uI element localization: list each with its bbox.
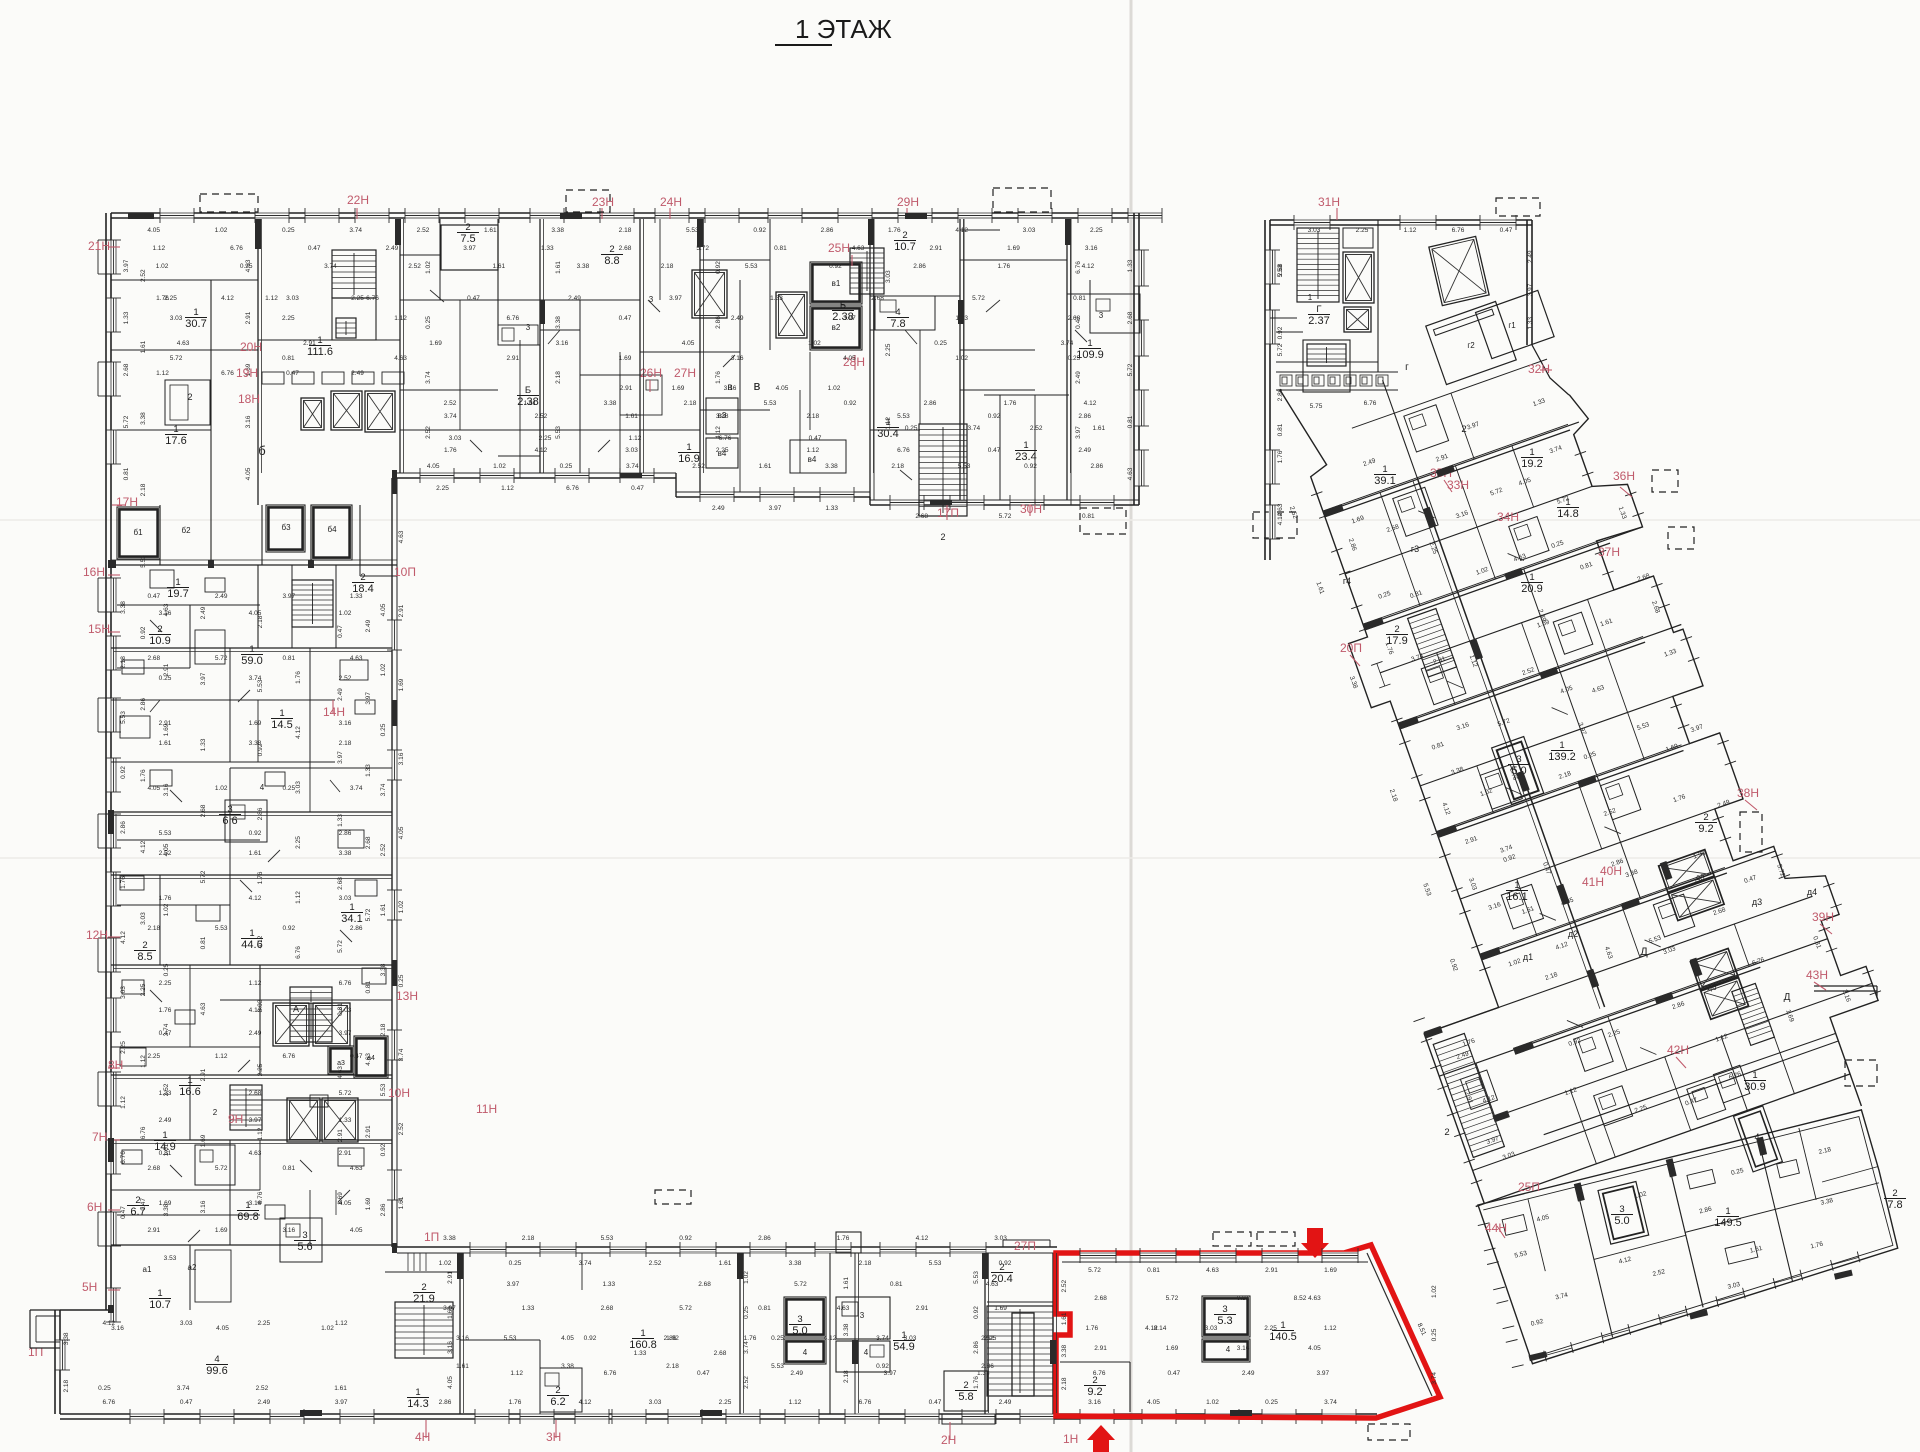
- svg-text:2.86: 2.86: [120, 821, 127, 834]
- svg-text:2.86: 2.86: [339, 830, 352, 837]
- svg-text:3.97: 3.97: [365, 692, 372, 705]
- svg-text:2: 2: [1703, 812, 1708, 823]
- svg-text:3.03: 3.03: [649, 1399, 662, 1406]
- svg-text:2.86: 2.86: [1078, 413, 1091, 420]
- svg-text:2.91: 2.91: [929, 245, 942, 252]
- svg-text:4.05: 4.05: [1308, 1345, 1321, 1352]
- svg-text:0.25: 0.25: [1068, 355, 1081, 362]
- svg-text:0.92: 0.92: [1277, 326, 1284, 339]
- svg-text:5.53: 5.53: [159, 830, 172, 837]
- svg-text:6.76: 6.76: [859, 1399, 872, 1406]
- svg-text:25П: 25П: [1518, 1180, 1540, 1194]
- svg-text:19.7: 19.7: [167, 588, 188, 600]
- svg-text:139.2: 139.2: [1548, 751, 1576, 763]
- svg-text:1.69: 1.69: [429, 340, 442, 347]
- svg-text:2: 2: [142, 940, 147, 951]
- svg-text:3: 3: [1099, 311, 1104, 320]
- svg-text:6.6: 6.6: [222, 815, 237, 827]
- svg-text:0.25: 0.25: [509, 1260, 522, 1267]
- svg-text:Д: Д: [1784, 992, 1791, 1003]
- svg-text:3.74: 3.74: [967, 425, 980, 432]
- svg-text:0.25: 0.25: [98, 1385, 111, 1392]
- svg-text:1.61: 1.61: [159, 740, 172, 747]
- svg-text:109.9: 109.9: [1076, 349, 1104, 361]
- svg-text:5.72: 5.72: [972, 295, 985, 302]
- svg-text:19Н: 19Н: [236, 366, 258, 380]
- svg-text:2.49: 2.49: [215, 593, 228, 600]
- svg-text:3.38: 3.38: [249, 740, 262, 747]
- svg-text:0.25: 0.25: [934, 340, 947, 347]
- svg-text:2.25: 2.25: [716, 447, 729, 454]
- svg-text:4.63: 4.63: [365, 1053, 372, 1066]
- svg-text:29Н: 29Н: [897, 195, 919, 209]
- svg-text:3.38: 3.38: [63, 1332, 70, 1345]
- svg-text:2.18: 2.18: [619, 227, 632, 234]
- svg-text:3.74: 3.74: [444, 413, 457, 420]
- svg-text:5.72: 5.72: [999, 513, 1012, 520]
- svg-text:0.47: 0.47: [180, 1399, 193, 1406]
- svg-text:0.47: 0.47: [147, 593, 160, 600]
- svg-text:39Н: 39Н: [1812, 910, 1834, 924]
- svg-text:2.86: 2.86: [981, 1363, 994, 1370]
- svg-text:г1: г1: [1508, 321, 1516, 330]
- svg-text:2.68: 2.68: [249, 1090, 262, 1097]
- svg-text:2.49: 2.49: [159, 1117, 172, 1124]
- svg-text:1.12: 1.12: [501, 485, 514, 492]
- svg-text:5.72: 5.72: [365, 908, 372, 921]
- svg-text:20Н: 20Н: [240, 340, 262, 354]
- svg-text:2.68: 2.68: [147, 655, 160, 662]
- svg-text:3.97: 3.97: [123, 259, 130, 272]
- svg-text:4.12: 4.12: [535, 447, 548, 454]
- svg-text:5.72: 5.72: [200, 870, 207, 883]
- svg-text:0.81: 0.81: [282, 1165, 295, 1172]
- svg-text:6.76: 6.76: [604, 1370, 617, 1377]
- svg-text:2.52: 2.52: [1061, 1279, 1068, 1292]
- svg-text:2.49: 2.49: [568, 295, 581, 302]
- svg-text:1.76: 1.76: [1277, 450, 1284, 463]
- svg-text:0.47: 0.47: [988, 447, 1001, 454]
- svg-text:0.81: 0.81: [200, 936, 207, 949]
- svg-text:4.63: 4.63: [837, 1305, 850, 1312]
- svg-text:1: 1: [349, 902, 354, 913]
- svg-text:14.5: 14.5: [271, 719, 292, 731]
- svg-text:38Н: 38Н: [1737, 786, 1759, 800]
- svg-text:4.63: 4.63: [249, 1150, 262, 1157]
- svg-text:1.76: 1.76: [1004, 400, 1017, 407]
- svg-text:10П: 10П: [394, 565, 416, 579]
- svg-text:2.49: 2.49: [712, 505, 725, 512]
- svg-text:1: 1: [173, 424, 178, 435]
- svg-text:1.69: 1.69: [163, 723, 170, 736]
- svg-text:д2: д2: [1568, 929, 1578, 939]
- svg-text:6.76: 6.76: [1364, 400, 1377, 407]
- svg-text:22Н: 22Н: [347, 193, 369, 207]
- svg-text:1: 1: [317, 335, 322, 346]
- svg-text:1.69: 1.69: [200, 1134, 207, 1147]
- svg-text:4.12: 4.12: [257, 935, 264, 948]
- svg-text:2.25: 2.25: [1356, 227, 1369, 234]
- svg-text:2.18: 2.18: [147, 925, 160, 932]
- svg-text:3: 3: [526, 323, 531, 332]
- svg-text:44Н: 44Н: [1485, 1221, 1507, 1235]
- svg-text:3.38: 3.38: [120, 601, 127, 614]
- svg-text:3.16: 3.16: [163, 783, 170, 796]
- svg-text:2.49: 2.49: [257, 1399, 270, 1406]
- svg-text:3.97: 3.97: [1075, 426, 1082, 439]
- svg-text:0.92: 0.92: [829, 263, 842, 270]
- svg-text:2.49: 2.49: [999, 1399, 1012, 1406]
- svg-text:1.02: 1.02: [743, 1271, 750, 1284]
- svg-text:1.12: 1.12: [152, 245, 165, 252]
- svg-text:0.92: 0.92: [249, 830, 262, 837]
- svg-text:4: 4: [1226, 1345, 1231, 1354]
- svg-text:2.52: 2.52: [425, 426, 432, 439]
- svg-text:2: 2: [1394, 624, 1399, 635]
- svg-text:1: 1: [1023, 440, 1028, 451]
- svg-text:1.69: 1.69: [159, 1200, 172, 1207]
- svg-text:г3: г3: [1411, 544, 1419, 554]
- svg-text:г4: г4: [1343, 576, 1351, 586]
- svg-text:3.74: 3.74: [398, 1048, 405, 1061]
- svg-text:4.05: 4.05: [163, 843, 170, 856]
- svg-text:0.81: 0.81: [282, 355, 295, 362]
- svg-text:3.03: 3.03: [120, 986, 127, 999]
- svg-text:1: 1: [1308, 293, 1313, 302]
- svg-text:2: 2: [421, 1282, 426, 1293]
- svg-text:10.9: 10.9: [149, 635, 170, 647]
- svg-text:2.25: 2.25: [719, 1399, 732, 1406]
- svg-text:0.25: 0.25: [159, 675, 172, 682]
- svg-text:3.53: 3.53: [164, 1255, 177, 1262]
- svg-text:2.49: 2.49: [386, 245, 399, 252]
- svg-text:2: 2: [360, 572, 365, 583]
- svg-text:43Н: 43Н: [1806, 968, 1828, 982]
- svg-text:1.76: 1.76: [295, 671, 302, 684]
- svg-text:3.97: 3.97: [769, 505, 782, 512]
- svg-text:1.02: 1.02: [215, 227, 228, 234]
- svg-text:3.03: 3.03: [625, 447, 638, 454]
- svg-text:3.74: 3.74: [249, 675, 262, 682]
- svg-text:0.25: 0.25: [560, 463, 573, 470]
- svg-text:2.18: 2.18: [380, 1023, 387, 1036]
- svg-text:2.52: 2.52: [256, 1385, 269, 1392]
- svg-text:20П: 20П: [1340, 641, 1362, 655]
- svg-text:1.33: 1.33: [123, 311, 130, 324]
- svg-text:0.81: 0.81: [758, 1305, 771, 1312]
- svg-text:0.47: 0.47: [697, 1370, 710, 1377]
- svg-text:1: 1: [249, 928, 254, 939]
- svg-text:5.72: 5.72: [170, 355, 183, 362]
- svg-text:1.33: 1.33: [977, 1370, 990, 1377]
- svg-text:1.61: 1.61: [1092, 425, 1105, 432]
- svg-text:2.68: 2.68: [337, 877, 344, 890]
- svg-text:17.6: 17.6: [165, 435, 186, 447]
- svg-text:4.05: 4.05: [682, 340, 695, 347]
- svg-text:5Н: 5Н: [82, 1280, 97, 1294]
- svg-text:2.91: 2.91: [1094, 1345, 1107, 1352]
- svg-text:1: 1: [1280, 1320, 1285, 1331]
- svg-text:3.03: 3.03: [1205, 1325, 1218, 1332]
- svg-text:1.61: 1.61: [524, 400, 537, 407]
- svg-text:21Н: 21Н: [88, 239, 110, 253]
- svg-text:149.5: 149.5: [1714, 1217, 1742, 1229]
- svg-text:2.86: 2.86: [140, 698, 147, 711]
- svg-text:140.5: 140.5: [1269, 1331, 1297, 1343]
- svg-text:4.63: 4.63: [1308, 1295, 1321, 1302]
- svg-text:1.76: 1.76: [509, 1399, 522, 1406]
- svg-text:4.63: 4.63: [852, 245, 865, 252]
- svg-text:39.1: 39.1: [1374, 475, 1395, 487]
- svg-text:1.02: 1.02: [1206, 1399, 1219, 1406]
- svg-text:1.02: 1.02: [666, 1335, 679, 1342]
- svg-text:0.92: 0.92: [973, 1306, 980, 1319]
- svg-text:3: 3: [302, 1230, 307, 1241]
- svg-text:2.86: 2.86: [439, 1399, 452, 1406]
- svg-text:3.38: 3.38: [555, 316, 562, 329]
- svg-text:1.33: 1.33: [634, 1350, 647, 1357]
- svg-text:1: 1: [686, 442, 691, 453]
- svg-text:1.61: 1.61: [719, 1260, 732, 1267]
- svg-text:3.03: 3.03: [1308, 227, 1321, 234]
- svg-text:1.12: 1.12: [629, 435, 642, 442]
- svg-text:4.05: 4.05: [147, 227, 160, 234]
- svg-text:2.91: 2.91: [447, 1271, 454, 1284]
- svg-text:30.9: 30.9: [1744, 1081, 1765, 1093]
- svg-text:14Н: 14Н: [323, 705, 345, 719]
- svg-text:2.91: 2.91: [147, 1227, 160, 1234]
- svg-text:0.25: 0.25: [905, 425, 918, 432]
- svg-text:3.16: 3.16: [282, 1227, 295, 1234]
- svg-text:1.12: 1.12: [257, 1127, 264, 1140]
- svg-text:5.0: 5.0: [792, 1325, 807, 1337]
- svg-text:1.02: 1.02: [955, 355, 968, 362]
- svg-text:1.69: 1.69: [619, 355, 632, 362]
- svg-text:3.74: 3.74: [876, 1335, 889, 1342]
- svg-text:2.52: 2.52: [380, 843, 387, 856]
- svg-text:1.69: 1.69: [1166, 1345, 1179, 1352]
- svg-text:1.76: 1.76: [159, 1007, 172, 1014]
- svg-text:9.2: 9.2: [1698, 823, 1713, 835]
- svg-text:4.05: 4.05: [339, 1200, 352, 1207]
- svg-text:4.63: 4.63: [337, 1066, 344, 1079]
- svg-text:6.76: 6.76: [366, 295, 379, 302]
- svg-text:1: 1: [1087, 338, 1092, 349]
- svg-text:1.12: 1.12: [249, 980, 262, 987]
- svg-text:2.18: 2.18: [843, 1370, 850, 1383]
- svg-text:1: 1: [1514, 880, 1519, 891]
- svg-text:4.12: 4.12: [221, 295, 234, 302]
- svg-text:5.72: 5.72: [794, 1281, 807, 1288]
- svg-text:0.81: 0.81: [365, 980, 372, 993]
- svg-text:3.16: 3.16: [731, 355, 744, 362]
- svg-text:5.72: 5.72: [679, 1305, 692, 1312]
- svg-text:1.69: 1.69: [1007, 245, 1020, 252]
- svg-text:4.05: 4.05: [249, 610, 262, 617]
- svg-text:1.76: 1.76: [1085, 1325, 1098, 1332]
- svg-text:4.63: 4.63: [177, 340, 190, 347]
- svg-text:2.86: 2.86: [758, 1235, 771, 1242]
- svg-text:3.16: 3.16: [556, 340, 569, 347]
- svg-text:2.91: 2.91: [506, 355, 519, 362]
- svg-text:2.91: 2.91: [916, 1305, 929, 1312]
- svg-text:4.05: 4.05: [380, 603, 387, 616]
- svg-text:0.47: 0.47: [929, 1399, 942, 1406]
- svg-text:3.97: 3.97: [669, 295, 682, 302]
- svg-text:2.68: 2.68: [698, 1281, 711, 1288]
- svg-text:3: 3: [1619, 1204, 1624, 1215]
- svg-text:8.52: 8.52: [1294, 1295, 1307, 1302]
- svg-text:20.9: 20.9: [1521, 583, 1542, 595]
- svg-text:4.63: 4.63: [1277, 503, 1284, 516]
- svg-text:0.47: 0.47: [350, 1053, 363, 1060]
- svg-text:1.02: 1.02: [156, 263, 169, 270]
- svg-text:0.92: 0.92: [988, 413, 1001, 420]
- svg-text:2.25: 2.25: [295, 836, 302, 849]
- svg-text:3: 3: [797, 1314, 802, 1325]
- svg-text:1.76: 1.76: [257, 871, 264, 884]
- svg-text:1.69: 1.69: [398, 678, 405, 691]
- svg-text:0.81: 0.81: [1082, 513, 1095, 520]
- svg-text:0.47: 0.47: [1500, 227, 1513, 234]
- svg-text:14.3: 14.3: [407, 1398, 428, 1410]
- svg-text:1.02: 1.02: [215, 785, 228, 792]
- svg-text:2.25: 2.25: [1090, 227, 1103, 234]
- svg-text:2.68: 2.68: [619, 245, 632, 252]
- svg-text:2.25: 2.25: [351, 295, 364, 302]
- svg-text:3: 3: [227, 804, 232, 815]
- svg-text:5.3: 5.3: [1217, 1315, 1232, 1327]
- svg-text:4.63: 4.63: [398, 530, 405, 543]
- svg-text:2.91: 2.91: [620, 385, 633, 392]
- svg-text:3: 3: [1516, 754, 1521, 765]
- svg-text:2.25: 2.25: [159, 980, 172, 987]
- svg-text:2.18: 2.18: [666, 1363, 679, 1370]
- svg-text:2: 2: [963, 1380, 968, 1391]
- svg-text:2: 2: [1892, 1188, 1897, 1199]
- svg-text:1: 1: [193, 307, 198, 318]
- svg-text:0.81: 0.81: [890, 1281, 903, 1288]
- svg-text:0.81: 0.81: [337, 1003, 344, 1016]
- svg-text:3.03: 3.03: [449, 435, 462, 442]
- svg-text:а2: а2: [188, 1263, 197, 1272]
- svg-text:1.61: 1.61: [456, 1363, 469, 1370]
- svg-text:1.02: 1.02: [828, 385, 841, 392]
- svg-text:0.25: 0.25: [398, 974, 405, 987]
- svg-text:1.33: 1.33: [770, 295, 783, 302]
- svg-text:4.63: 4.63: [350, 1165, 363, 1172]
- svg-text:59.0: 59.0: [241, 655, 262, 667]
- svg-text:2: 2: [187, 392, 192, 402]
- svg-text:4.12: 4.12: [1082, 263, 1095, 270]
- svg-text:0.92: 0.92: [715, 261, 722, 274]
- svg-text:2.18: 2.18: [63, 1379, 70, 1392]
- svg-text:0.92: 0.92: [679, 1235, 692, 1242]
- svg-text:б1: б1: [133, 528, 143, 537]
- svg-text:2: 2: [465, 222, 470, 233]
- svg-text:2.91: 2.91: [398, 604, 405, 617]
- svg-text:0.92: 0.92: [753, 227, 766, 234]
- svg-text:1: 1: [187, 1075, 192, 1086]
- svg-text:6.76: 6.76: [719, 435, 732, 442]
- svg-text:6.76: 6.76: [506, 315, 519, 322]
- svg-text:4.12: 4.12: [579, 1399, 592, 1406]
- svg-text:5.72: 5.72: [215, 1165, 228, 1172]
- svg-text:1Н: 1Н: [1063, 1432, 1078, 1446]
- svg-text:0.81: 0.81: [159, 1150, 172, 1157]
- svg-text:0.92: 0.92: [380, 1143, 387, 1156]
- svg-text:0.81: 0.81: [774, 245, 787, 252]
- svg-text:1.76: 1.76: [140, 769, 147, 782]
- svg-text:2.18: 2.18: [1061, 1377, 1068, 1390]
- svg-text:в: в: [754, 378, 761, 393]
- svg-text:3.38: 3.38: [339, 850, 352, 857]
- svg-text:1.02: 1.02: [439, 1260, 452, 1267]
- svg-text:1.61: 1.61: [843, 1277, 850, 1290]
- svg-text:69.8: 69.8: [237, 1211, 258, 1223]
- svg-text:10.7: 10.7: [894, 241, 915, 253]
- svg-text:1.12: 1.12: [156, 370, 169, 377]
- svg-text:16.6: 16.6: [179, 1086, 200, 1098]
- svg-text:1: 1: [279, 708, 284, 719]
- svg-text:2.86: 2.86: [257, 807, 264, 820]
- svg-text:5.53: 5.53: [601, 1235, 614, 1242]
- svg-text:1.76: 1.76: [973, 1376, 980, 1389]
- svg-text:2.86: 2.86: [973, 1341, 980, 1354]
- svg-text:5.6: 5.6: [297, 1241, 312, 1253]
- svg-text:2.37: 2.37: [1308, 315, 1329, 327]
- svg-text:1.12: 1.12: [120, 1096, 127, 1109]
- svg-text:6.2: 6.2: [550, 1396, 565, 1408]
- svg-text:1.69: 1.69: [994, 1305, 1007, 1312]
- svg-text:1.02: 1.02: [339, 610, 352, 617]
- svg-text:г2: г2: [1467, 341, 1475, 350]
- svg-text:б: б: [258, 443, 265, 458]
- svg-text:0.25: 0.25: [743, 1306, 750, 1319]
- svg-text:2.49: 2.49: [731, 315, 744, 322]
- svg-text:2.25: 2.25: [885, 343, 892, 356]
- svg-text:1.76: 1.76: [997, 263, 1010, 270]
- svg-text:д8: д8: [1695, 873, 1705, 882]
- svg-text:2.68: 2.68: [915, 513, 928, 520]
- svg-text:6.76: 6.76: [1452, 227, 1465, 234]
- svg-text:3: 3: [860, 1311, 865, 1320]
- svg-text:3.97: 3.97: [843, 315, 856, 322]
- svg-text:1.76: 1.76: [159, 895, 172, 902]
- svg-text:4.63: 4.63: [394, 355, 407, 362]
- svg-text:2.18: 2.18: [684, 400, 697, 407]
- svg-text:4.12: 4.12: [916, 1235, 929, 1242]
- svg-text:2.49: 2.49: [1078, 447, 1091, 454]
- svg-text:3.74: 3.74: [743, 1341, 750, 1354]
- svg-text:10.7: 10.7: [149, 1299, 170, 1311]
- svg-text:3.97: 3.97: [335, 1399, 348, 1406]
- svg-text:3.74: 3.74: [380, 783, 387, 796]
- svg-text:27Н: 27Н: [674, 366, 696, 380]
- svg-text:0.92: 0.92: [584, 1335, 597, 1342]
- svg-text:2.52: 2.52: [535, 413, 548, 420]
- svg-text:4.05: 4.05: [776, 385, 789, 392]
- svg-text:0.92: 0.92: [282, 925, 295, 932]
- svg-text:0.25: 0.25: [380, 723, 387, 736]
- svg-text:5.72: 5.72: [1127, 363, 1134, 376]
- svg-text:2: 2: [609, 244, 614, 255]
- svg-text:4: 4: [803, 1348, 808, 1357]
- svg-text:6.76: 6.76: [282, 1053, 295, 1060]
- svg-text:2.49: 2.49: [337, 688, 344, 701]
- svg-text:0.81: 0.81: [1277, 423, 1284, 436]
- svg-text:2.91: 2.91: [303, 340, 316, 347]
